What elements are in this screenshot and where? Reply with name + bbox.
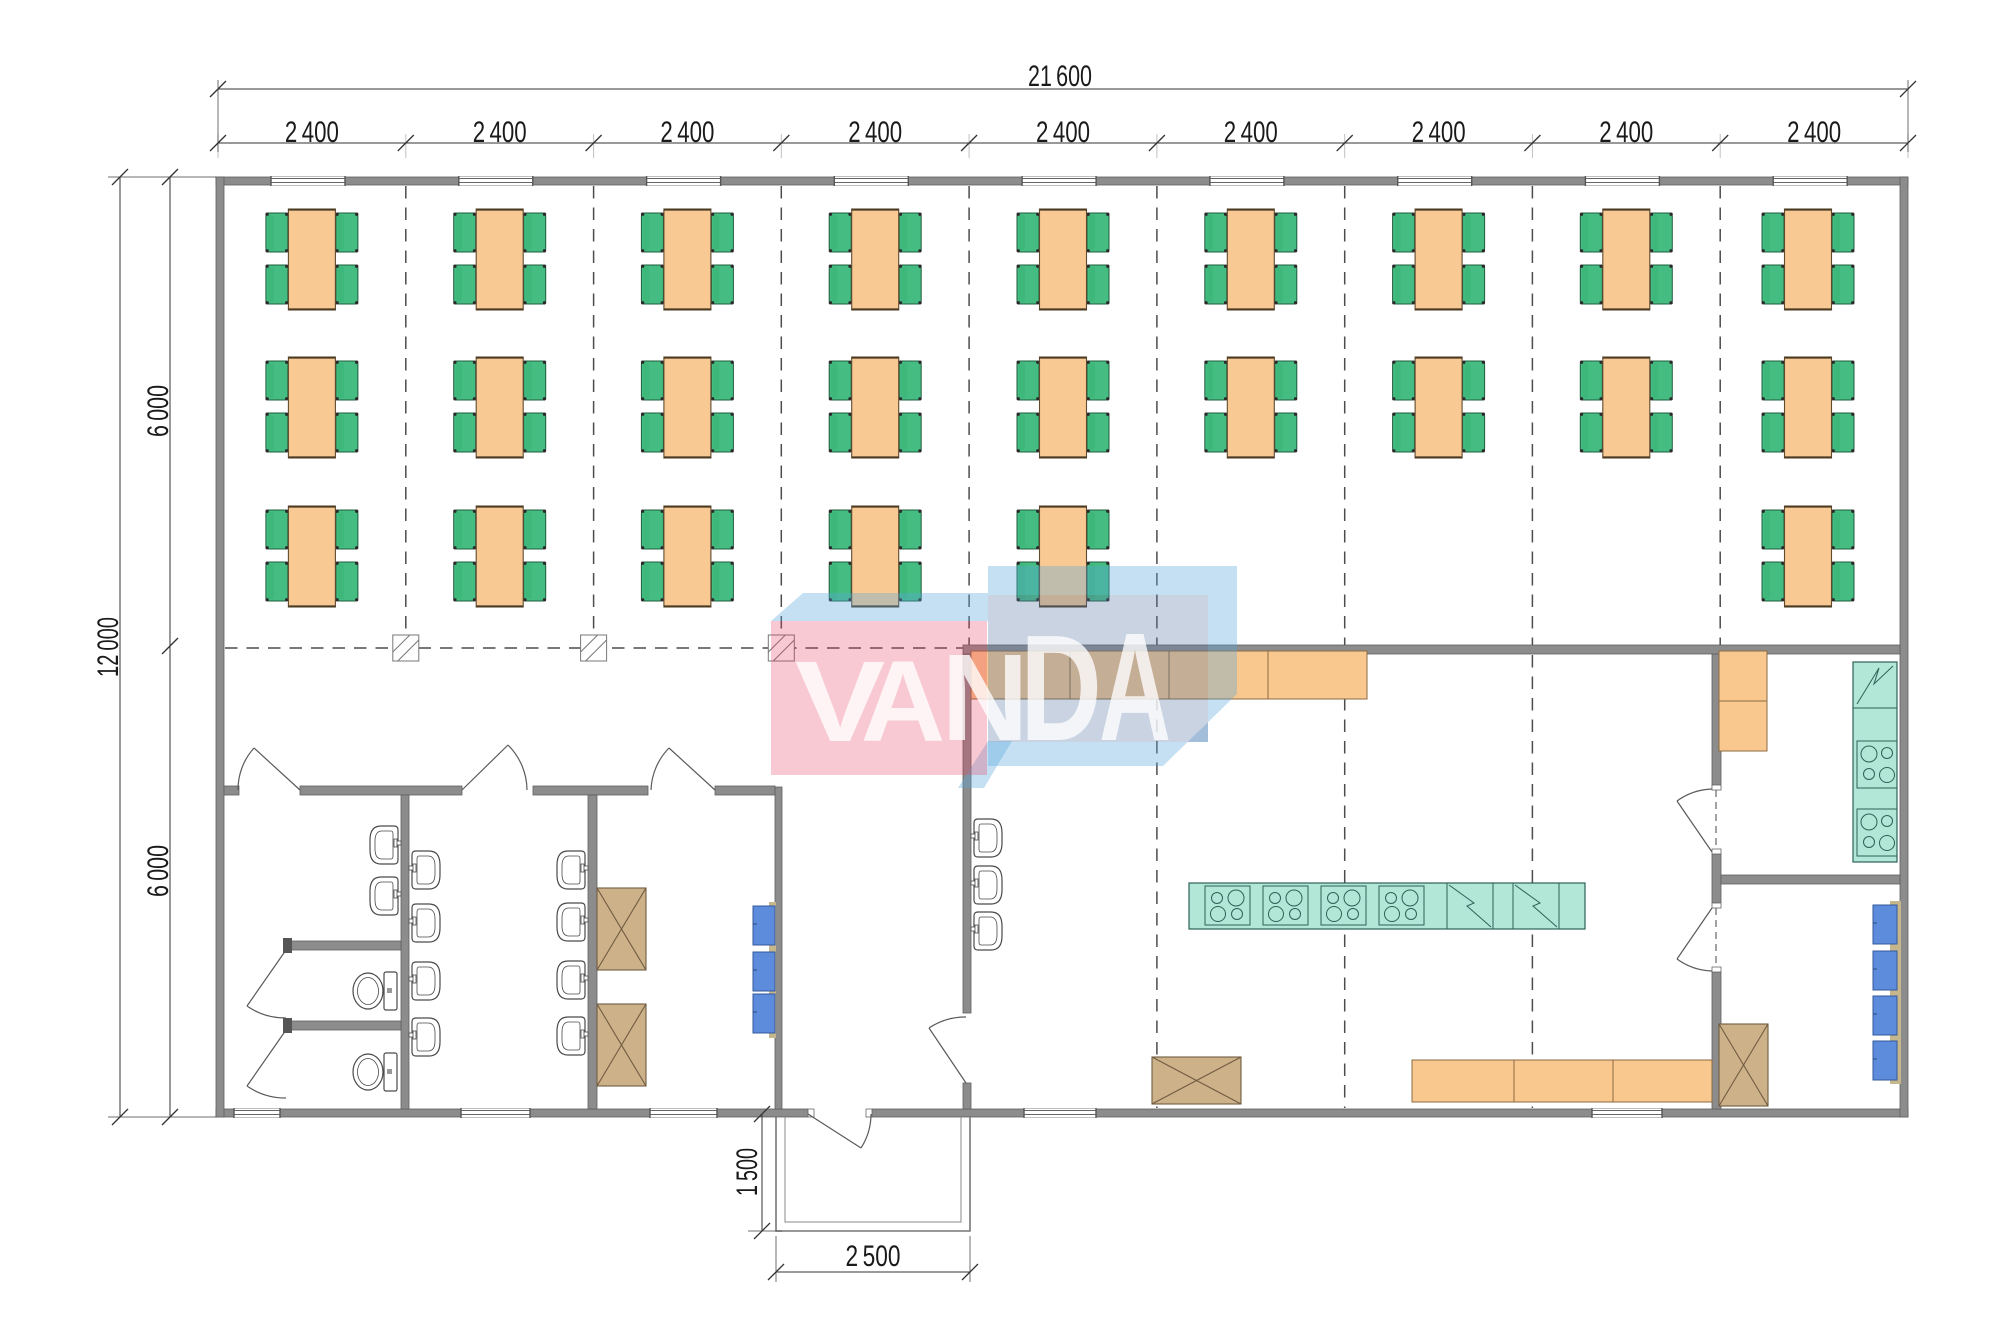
svg-text:1 500: 1 500 (731, 1148, 764, 1196)
svg-text:A: A (861, 637, 946, 766)
svg-text:2 400: 2 400 (1412, 116, 1466, 149)
svg-text:6 000: 6 000 (142, 385, 175, 437)
svg-text:2 400: 2 400 (473, 116, 527, 149)
svg-text:2 400: 2 400 (1599, 116, 1653, 149)
svg-text:2 400: 2 400 (848, 116, 902, 149)
svg-text:12 000: 12 000 (92, 617, 125, 677)
svg-text:2 400: 2 400 (660, 116, 714, 149)
svg-text:D: D (1020, 604, 1102, 773)
svg-text:A: A (1099, 600, 1171, 773)
svg-text:N: N (941, 629, 1028, 766)
svg-text:21 600: 21 600 (1028, 60, 1092, 93)
svg-text:6 000: 6 000 (142, 845, 175, 897)
svg-text:2 400: 2 400 (285, 116, 339, 149)
svg-text:2 500: 2 500 (846, 1240, 901, 1273)
svg-text:2 400: 2 400 (1787, 116, 1841, 149)
svg-text:2 400: 2 400 (1224, 116, 1278, 149)
svg-text:2 400: 2 400 (1036, 116, 1090, 149)
